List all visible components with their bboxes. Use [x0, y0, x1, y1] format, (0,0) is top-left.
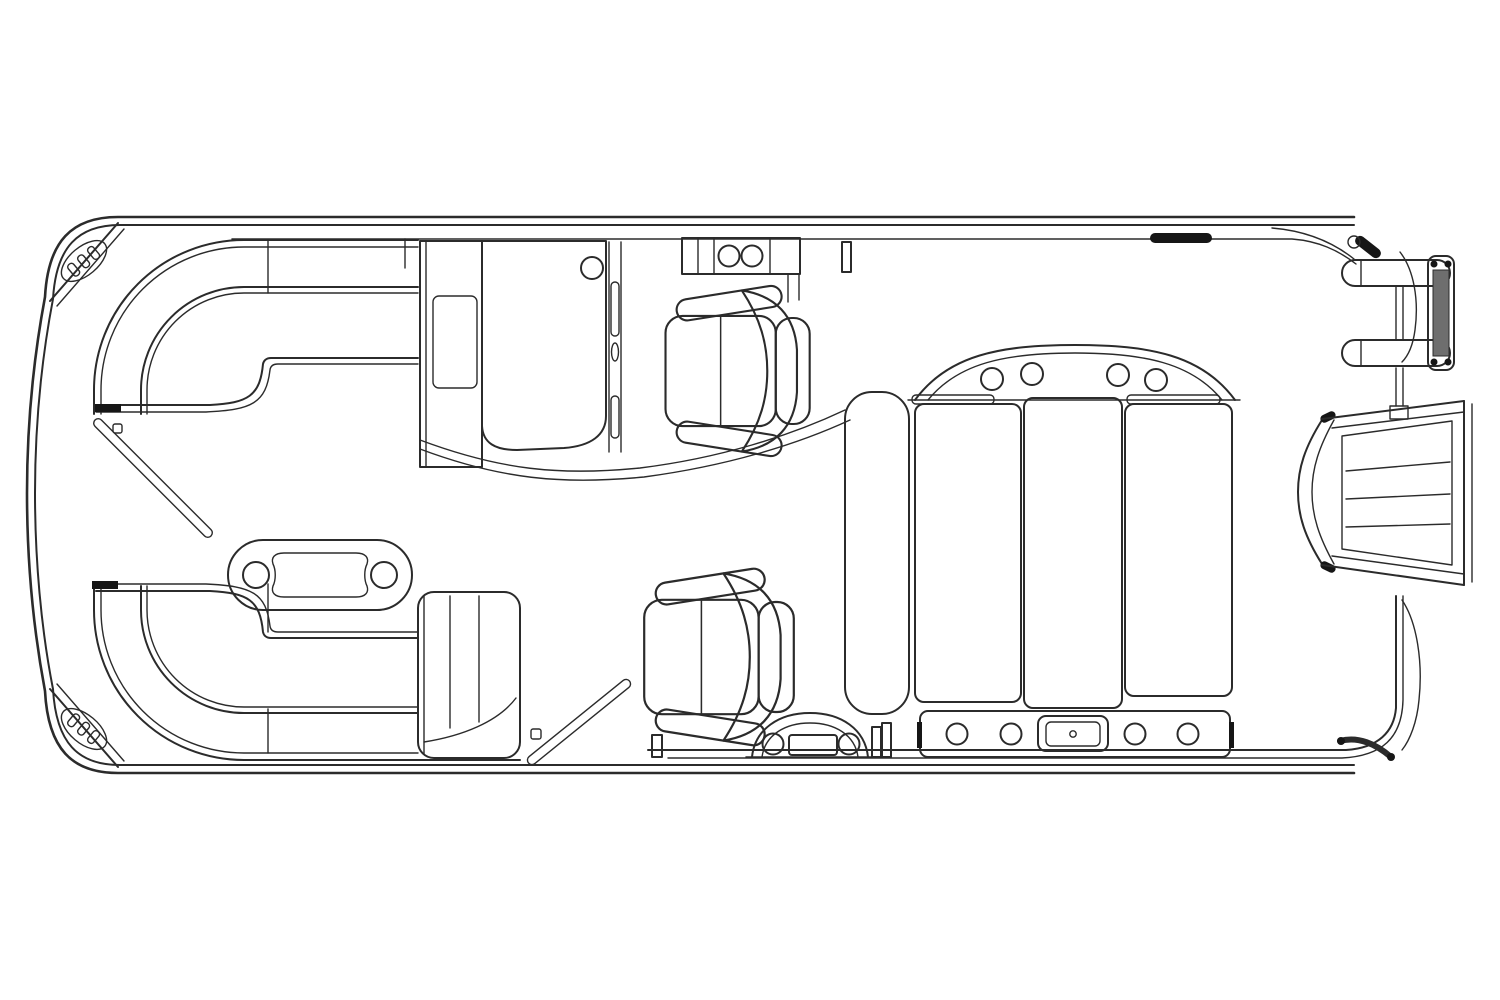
lounge-armrest [845, 392, 909, 714]
gate-door-open [526, 678, 633, 767]
rail-post [842, 242, 851, 272]
captain-chair-aft [644, 567, 794, 747]
lounge-back-outer [94, 586, 520, 760]
lounge-cushion-seam-inner [147, 586, 418, 707]
storage-cabinet [420, 241, 482, 467]
seat-cushion [915, 404, 1021, 702]
hull-outer-edge [27, 217, 1354, 773]
pontoon-floorplan-page [0, 0, 1500, 1000]
lounge-cushion-seam [141, 586, 418, 713]
cup-holder [1021, 363, 1043, 385]
stern-rail [648, 233, 1420, 761]
captain-chair-forward [666, 284, 810, 457]
cowling-inner-panel [1342, 421, 1452, 565]
tread-plate [789, 735, 837, 755]
ladder-bolt [1431, 359, 1438, 366]
storage-door [433, 296, 477, 388]
cup-holder [742, 246, 763, 267]
lounge-front-edge [96, 591, 418, 638]
cup-holder [1178, 724, 1199, 745]
rail-post [872, 727, 881, 757]
seat-cushion [1125, 404, 1232, 696]
lounge-cushion-seam [141, 287, 418, 414]
swoosh-cap [1337, 737, 1345, 745]
latch-inner [1046, 722, 1100, 746]
lounge-back-inner [101, 247, 418, 414]
bow-speaker-caps [50, 223, 124, 767]
cup-holder [981, 368, 1003, 390]
port-bow-lounge [94, 239, 418, 414]
latch-button [1070, 731, 1076, 737]
gate-post [882, 723, 891, 757]
lounge-back-inner [101, 586, 418, 753]
helm-console [420, 241, 850, 480]
cowling-front-outer [1298, 420, 1322, 564]
rear-lounge [845, 345, 1240, 714]
ladder-bolt [1445, 359, 1452, 366]
gate-latch-mark [95, 404, 121, 412]
outboard-motor [1298, 401, 1472, 585]
transom-curve-bottom [1402, 600, 1420, 750]
cup-holder-console [682, 238, 851, 302]
cup-holder [719, 246, 740, 267]
seat-cushion [1024, 398, 1122, 708]
cup-holder [243, 562, 269, 588]
table-inner-panel [272, 553, 367, 597]
bow-gate [92, 417, 214, 539]
cup-holder [947, 724, 968, 745]
pontoon-floorplan-drawing [0, 0, 1500, 1000]
panel-end-cap [917, 722, 922, 748]
swoosh-cap [1387, 753, 1395, 761]
gate-door-open [92, 417, 214, 539]
steering-wheel-icon [581, 257, 603, 279]
cup-holder [1145, 369, 1167, 391]
cup-holder [1001, 724, 1022, 745]
gate-hinge [113, 424, 122, 433]
hull [27, 217, 1356, 773]
cup-holder [1125, 724, 1146, 745]
cup-holder [371, 562, 397, 588]
hull-inner-edge [35, 225, 1354, 765]
cocktail-table [228, 540, 412, 610]
return-backrest [418, 592, 520, 758]
cowling-front-inner [1312, 420, 1334, 564]
ladder-folded-rungs [1433, 270, 1449, 356]
handle-grip [1150, 233, 1212, 243]
cowling-vents [1346, 462, 1450, 527]
console-body [482, 241, 606, 450]
gate-post [652, 735, 662, 757]
table-top [228, 540, 412, 610]
ladder-bolt [1431, 261, 1438, 268]
lounge-cushion-seam-inner [147, 293, 418, 414]
cup-holder [1107, 364, 1129, 386]
starboard-bow-lounge [92, 581, 520, 760]
ladder-bolt [1445, 261, 1452, 268]
windscreen [609, 242, 621, 452]
gate-hinge [531, 729, 541, 739]
arched-backrest-inner [928, 353, 1222, 400]
panel-end-cap [1229, 722, 1234, 748]
return-backrest-seam [424, 698, 516, 742]
gate-latch-mark [92, 581, 118, 589]
boarding-ladder [1342, 234, 1454, 370]
